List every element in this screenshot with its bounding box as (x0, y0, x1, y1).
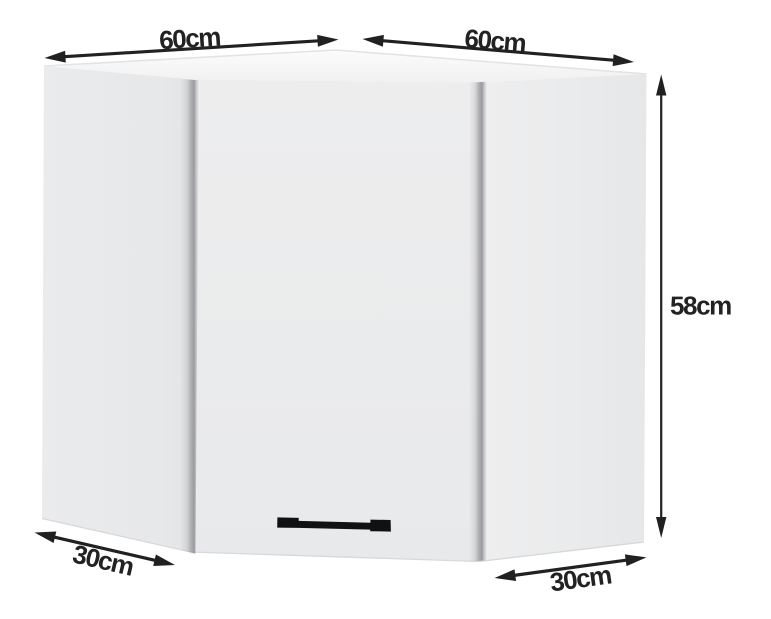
svg-text:60cm: 60cm (463, 23, 527, 58)
svg-text:60cm: 60cm (158, 21, 221, 55)
svg-text:58cm: 58cm (670, 291, 731, 321)
